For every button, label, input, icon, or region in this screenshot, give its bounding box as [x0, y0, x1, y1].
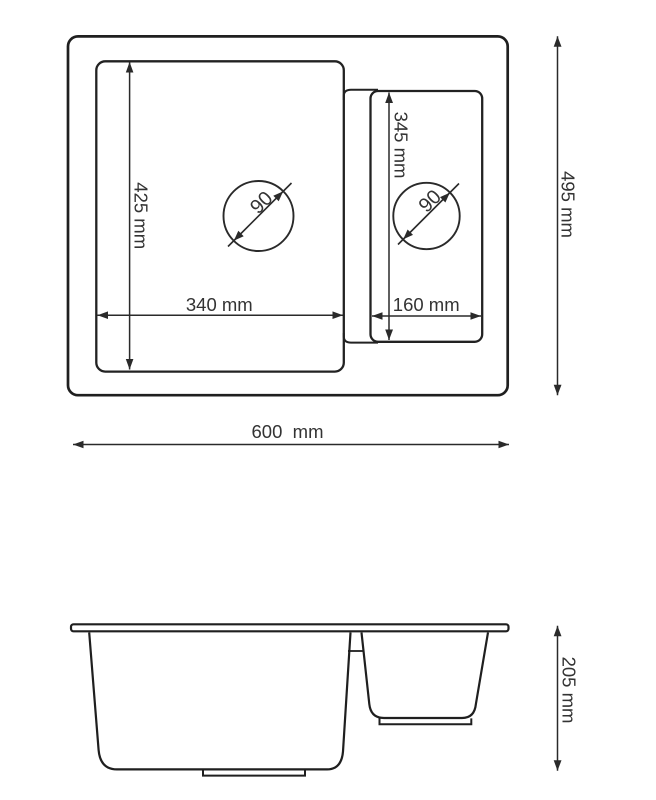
svg-text:205 mm: 205 mm [559, 657, 580, 724]
svg-text:345 mm: 345 mm [391, 112, 412, 179]
svg-text:495 mm: 495 mm [558, 171, 579, 238]
svg-text:160 mm: 160 mm [393, 294, 460, 315]
svg-text:425 mm: 425 mm [131, 182, 152, 249]
svg-text:600 mm: 600 mm [252, 421, 324, 442]
svg-text:340 mm: 340 mm [186, 294, 253, 315]
